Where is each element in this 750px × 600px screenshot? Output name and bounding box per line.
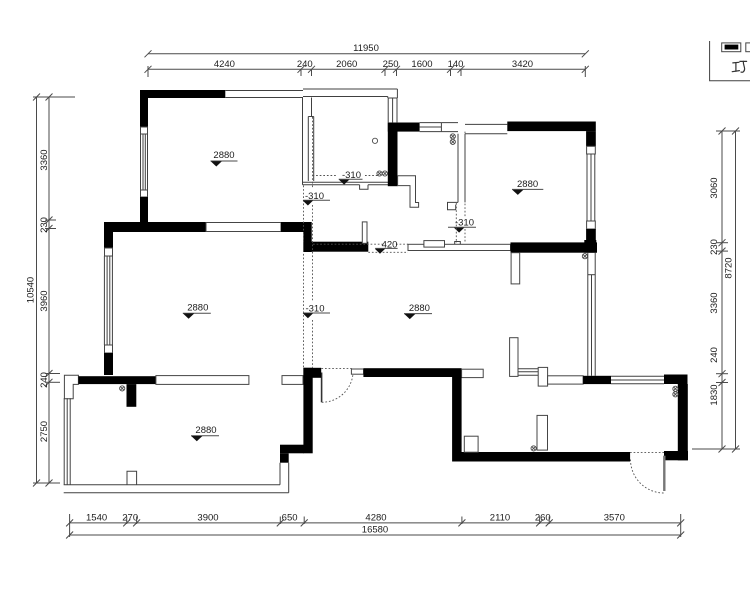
svg-text:11950: 11950 <box>353 43 379 54</box>
svg-text:3360: 3360 <box>39 149 50 170</box>
svg-text:270: 270 <box>122 512 138 523</box>
svg-text:4240: 4240 <box>214 59 235 70</box>
svg-text:2750: 2750 <box>39 421 50 442</box>
svg-text:1540: 1540 <box>86 512 107 523</box>
svg-text:8720: 8720 <box>724 257 735 278</box>
svg-text:2880: 2880 <box>517 179 538 190</box>
svg-text:3420: 3420 <box>512 59 533 70</box>
svg-text:240: 240 <box>709 347 720 363</box>
svg-text:2880: 2880 <box>195 425 216 436</box>
svg-text:240: 240 <box>39 372 50 388</box>
svg-text:650: 650 <box>282 512 298 523</box>
svg-text:1830: 1830 <box>709 384 720 405</box>
svg-text:2060: 2060 <box>336 59 357 70</box>
svg-text:140: 140 <box>448 59 464 70</box>
svg-text:1600: 1600 <box>411 59 432 70</box>
svg-text:2880: 2880 <box>187 303 208 314</box>
svg-text:16580: 16580 <box>362 525 388 536</box>
svg-text:3360: 3360 <box>709 292 720 313</box>
svg-text:10540: 10540 <box>26 277 37 303</box>
svg-text:3060: 3060 <box>709 177 720 198</box>
svg-text:2880: 2880 <box>409 303 430 314</box>
svg-text:2110: 2110 <box>490 512 510 523</box>
svg-text:4280: 4280 <box>365 512 386 523</box>
svg-text:230: 230 <box>39 217 50 233</box>
svg-text:2880: 2880 <box>213 150 234 161</box>
svg-text:3960: 3960 <box>39 290 50 311</box>
svg-text:240: 240 <box>297 59 313 70</box>
svg-text:260: 260 <box>535 512 551 523</box>
svg-text:230: 230 <box>709 239 720 255</box>
svg-text:250: 250 <box>383 59 399 70</box>
svg-text:3900: 3900 <box>197 512 218 523</box>
svg-text:3570: 3570 <box>604 512 625 523</box>
